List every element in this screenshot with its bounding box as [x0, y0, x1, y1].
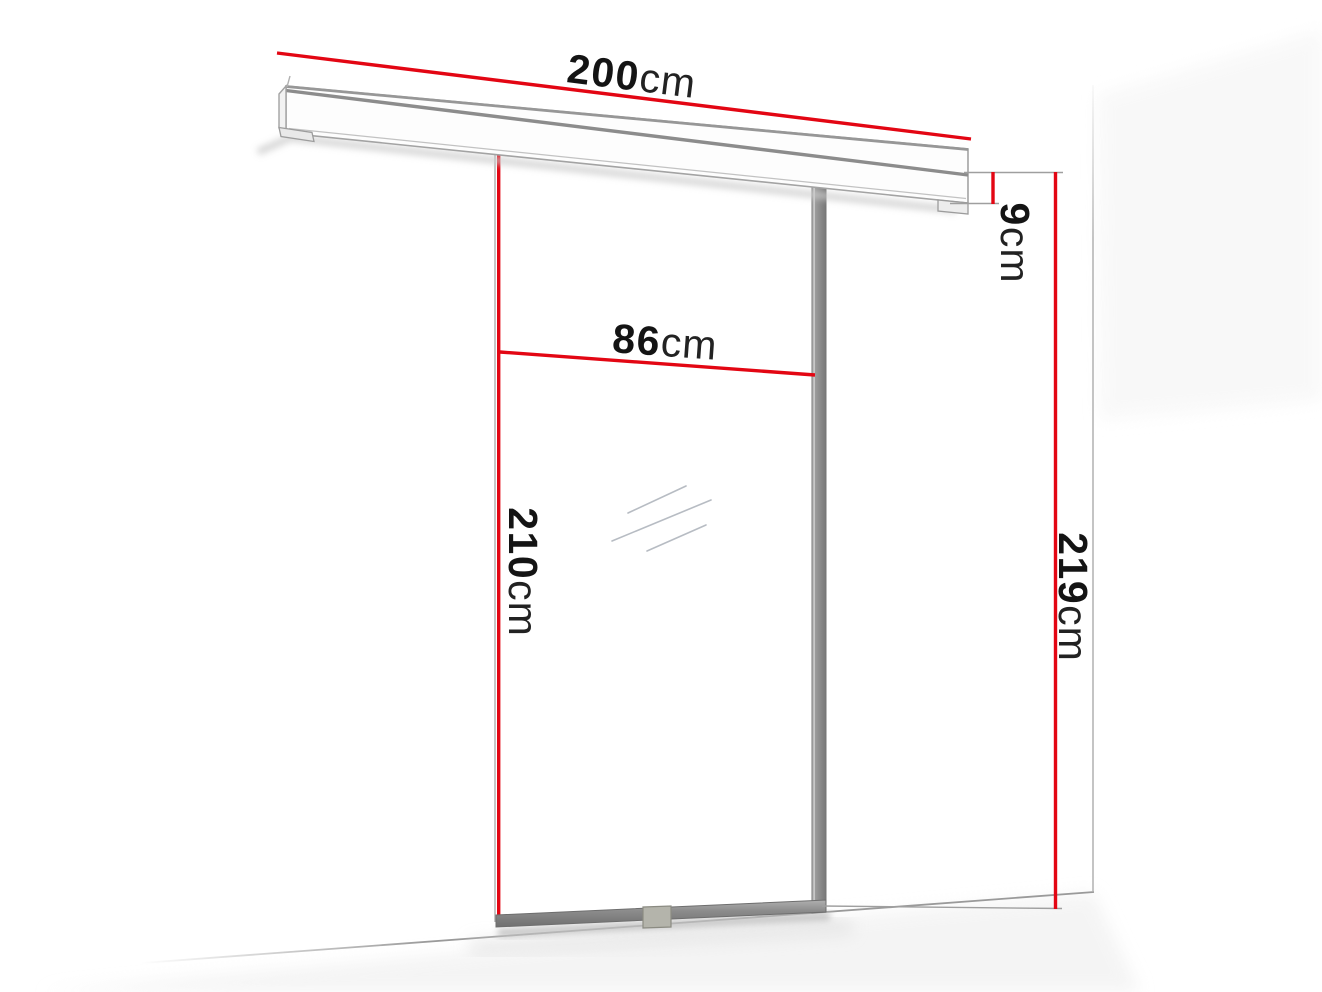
rail-left-end-cap: [279, 86, 286, 133]
rail-length-label: 200cm: [565, 45, 699, 107]
sliding-door-diagram: 200cm 86cm 210cm 9cm 219cm: [0, 0, 1322, 992]
rail-right-bottom-lip: [938, 200, 968, 214]
rail-height-label: 9cm: [992, 203, 1038, 284]
right-wall-shade: [1098, 30, 1322, 420]
floor-guide-block: [643, 906, 671, 928]
total-height-label: 219cm: [1050, 532, 1096, 662]
diagram-canvas: 200cm 86cm 210cm 9cm 219cm: [0, 0, 1322, 992]
door-width-label: 86cm: [611, 315, 719, 369]
door-height-label: 210cm: [500, 507, 546, 637]
